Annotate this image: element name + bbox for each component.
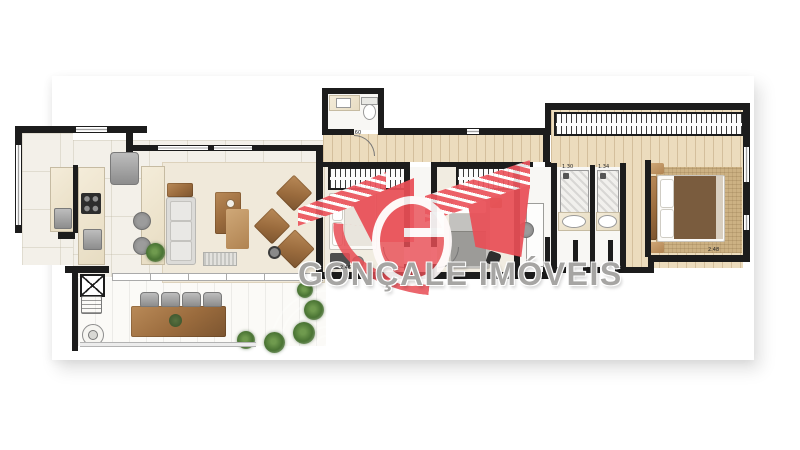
terrace-chair [161,292,180,307]
plant-icon [264,332,285,353]
sofa-console [167,183,193,197]
window [158,146,208,150]
plant-icon [304,300,324,320]
dimension-label: 2.48 [708,248,719,253]
nightstand-master [650,163,664,174]
dimension-label: 2.46 [340,266,351,271]
potted-plant-icon [146,243,165,262]
brand-watermark-text: GONÇALE IMÓVEIS [298,256,623,293]
wall [316,150,323,272]
office-chair [518,222,534,238]
nightstand-master [650,242,664,253]
sink-left-icon [562,215,586,228]
wall [65,266,109,273]
terrace-chair [203,292,222,307]
shower-right [597,170,619,214]
wall [404,162,410,247]
laundry-sink [54,208,72,229]
wall [322,88,384,94]
shaft-duct-icon [80,274,105,297]
wall [431,162,437,247]
floorplan-image: GONÇALE IMÓVEIS 1.60 1.30 1.34 2.46 2.48 [0,0,800,450]
sliding-door-frame [112,273,323,281]
dimension-label: 1.34 [598,165,609,170]
headboard-master [650,176,657,240]
sink-right-icon [598,215,617,228]
bar-stool [133,212,151,230]
wall [620,163,626,267]
shower-left [560,170,589,214]
oven-icon [83,229,102,250]
wall [58,232,75,239]
opening [533,162,545,167]
coffee-table-2 [226,209,249,249]
sofa [166,197,196,265]
dimension-label: 1.60 [350,131,361,136]
wall [378,128,551,135]
table-decor-icon [226,199,235,208]
glass-railing [80,342,256,347]
wall [645,160,651,257]
cooktop-icon [81,193,101,214]
wardrobe-bedroom-1 [328,167,406,190]
table-centerpiece-icon [169,314,182,327]
wall [590,165,595,267]
dimension-label: 1.30 [562,165,573,170]
floor-lamp-icon [268,246,281,259]
wall [73,165,78,233]
opening [410,162,431,167]
nightstand-bedroom-2 [490,198,502,208]
window [16,145,21,225]
window [467,129,479,134]
wardrobe-bedroom-2 [456,167,517,190]
kitchen-counter [78,167,105,265]
wall [322,88,328,135]
window [76,127,107,132]
wall [72,273,78,351]
bed-master [657,175,725,242]
plant-icon [293,322,315,344]
sideboard [203,252,237,266]
window [744,215,749,230]
window [744,147,749,182]
vanity-sink-icon [336,98,351,108]
wall [545,103,750,110]
wardrobe-master-closet [554,112,744,136]
bed-bedroom-1 [329,193,377,250]
terrace-chair [140,292,159,307]
terrace-chair [182,292,201,307]
window [214,146,252,150]
wall [551,163,557,267]
wall [743,103,750,262]
wall [543,128,550,166]
refrigerator-icon [110,152,139,185]
wall [648,255,750,262]
toilet-icon [363,104,376,120]
barbecue-grill-icon [81,296,102,314]
